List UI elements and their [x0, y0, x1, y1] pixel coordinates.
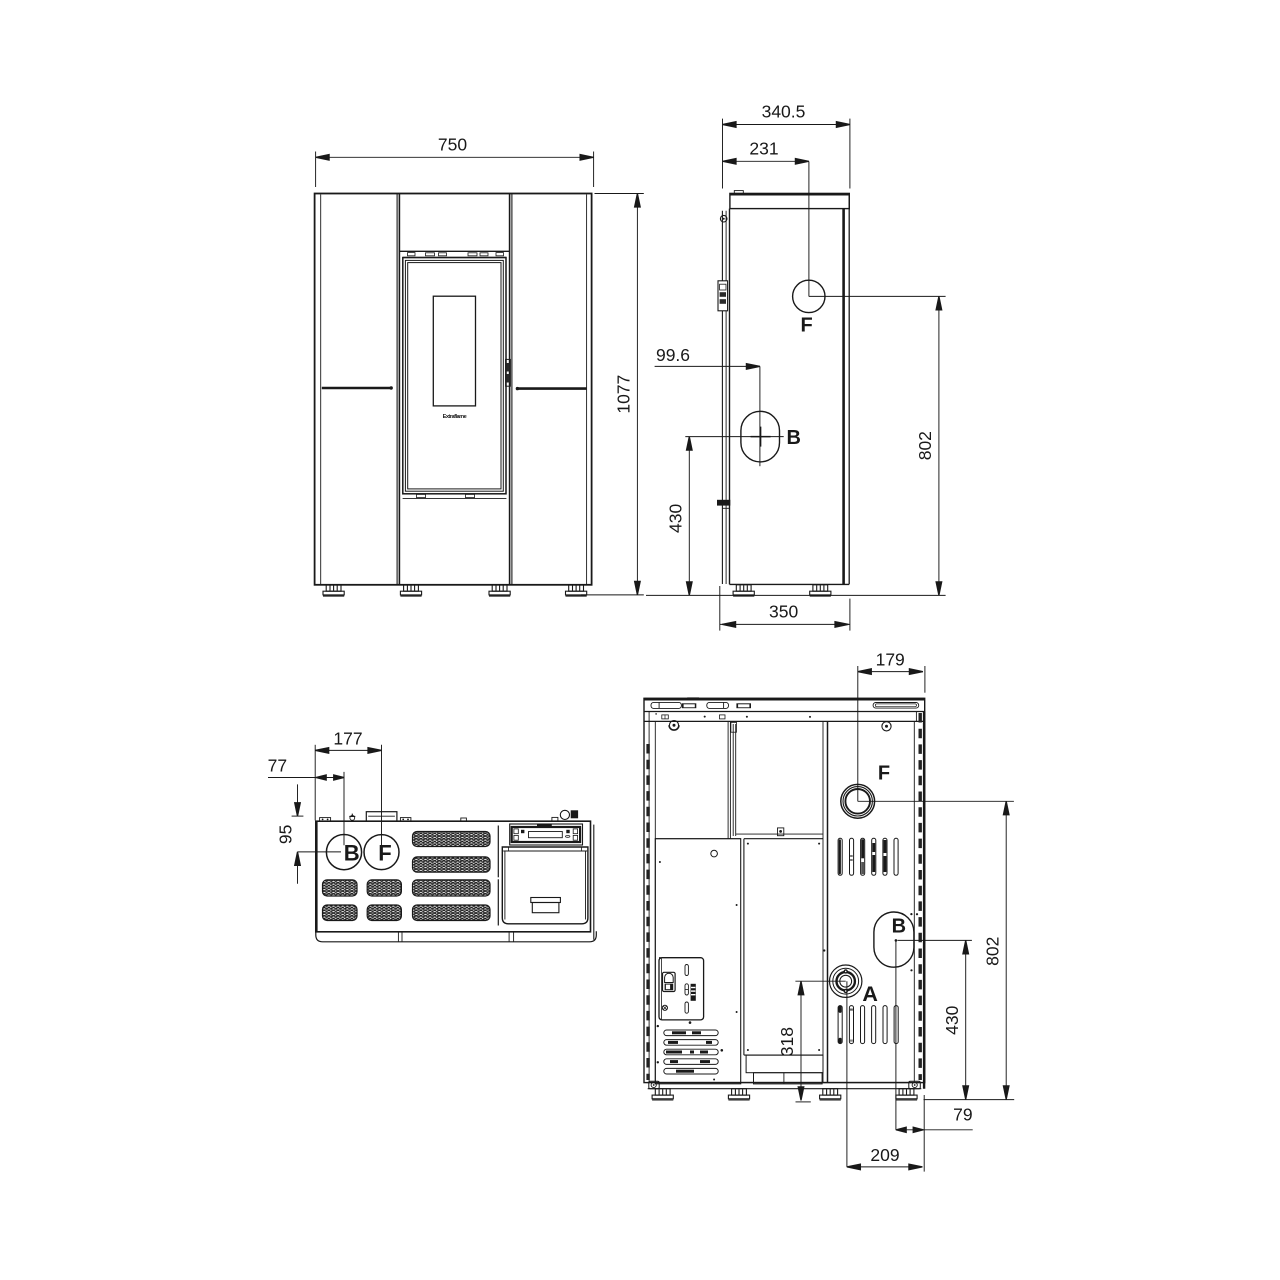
svg-text:95: 95: [276, 825, 296, 844]
svg-text:B: B: [892, 916, 906, 938]
svg-text:750: 750: [438, 135, 467, 155]
svg-text:F: F: [378, 840, 391, 865]
svg-text:B: B: [344, 840, 360, 865]
svg-text:179: 179: [876, 649, 905, 669]
svg-text:340.5: 340.5: [762, 102, 806, 122]
svg-text:Extraflame: Extraflame: [443, 414, 467, 420]
svg-text:209: 209: [870, 1145, 899, 1165]
svg-text:231: 231: [749, 138, 778, 158]
svg-text:79: 79: [953, 1104, 972, 1124]
svg-text:350: 350: [769, 602, 798, 622]
svg-text:F: F: [878, 763, 890, 785]
svg-text:430: 430: [942, 1005, 962, 1034]
svg-text:A: A: [862, 982, 878, 1006]
svg-text:430: 430: [666, 504, 686, 533]
svg-text:99.6: 99.6: [656, 345, 690, 365]
svg-text:F: F: [800, 315, 812, 337]
svg-text:318: 318: [777, 1027, 797, 1056]
svg-text:802: 802: [982, 937, 1002, 966]
svg-text:B: B: [786, 427, 800, 449]
svg-text:177: 177: [333, 729, 362, 749]
svg-text:802: 802: [915, 431, 935, 460]
svg-text:77: 77: [268, 755, 287, 775]
svg-text:1077: 1077: [614, 375, 634, 414]
